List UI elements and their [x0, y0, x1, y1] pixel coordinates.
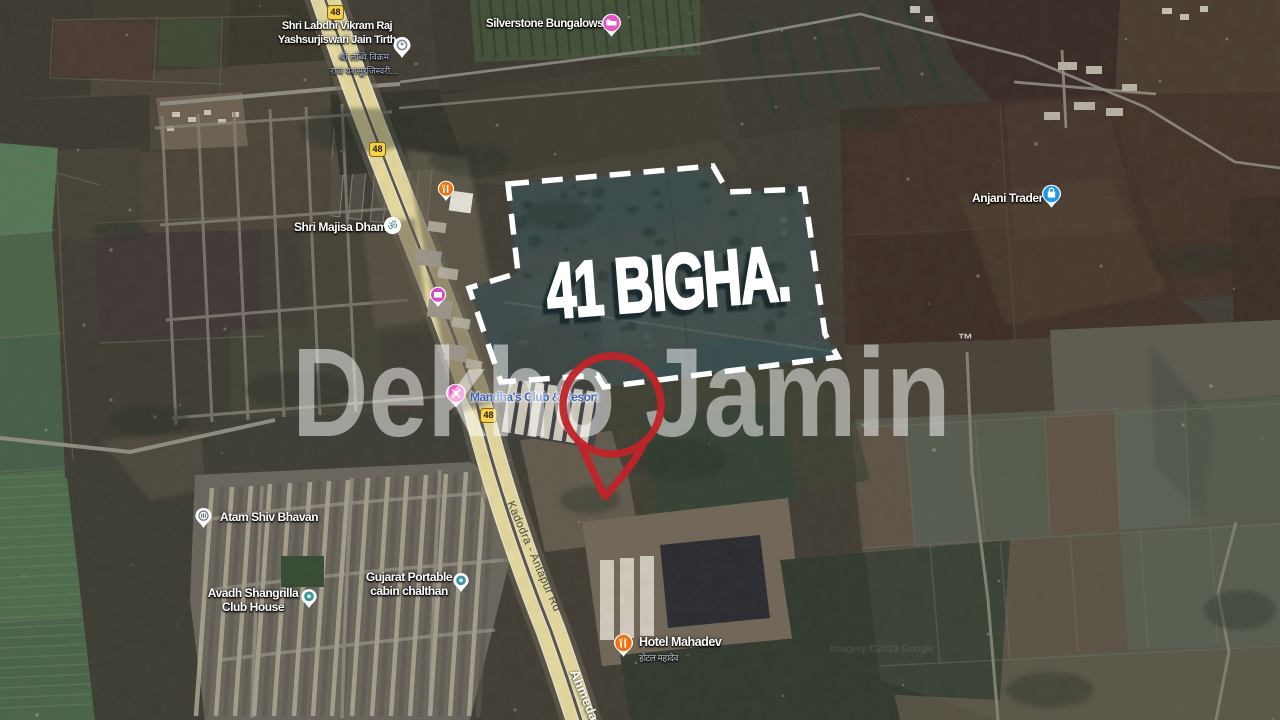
svg-text:Ahmeda: Ahmeda: [567, 667, 602, 720]
svg-text:Imagery ©2019 Google: Imagery ©2019 Google: [830, 644, 934, 655]
svg-text:41 BIGHA.: 41 BIGHA.: [543, 230, 792, 335]
svg-text:Dekho Jamin: Dekho Jamin: [292, 322, 951, 463]
svg-text:JT25-LIB: JT25-LIB: [785, 341, 818, 352]
svg-text:Kadodra - Antapur Rd: Kadodra - Antapur Rd: [504, 499, 563, 613]
svg-text:™: ™: [958, 331, 973, 348]
